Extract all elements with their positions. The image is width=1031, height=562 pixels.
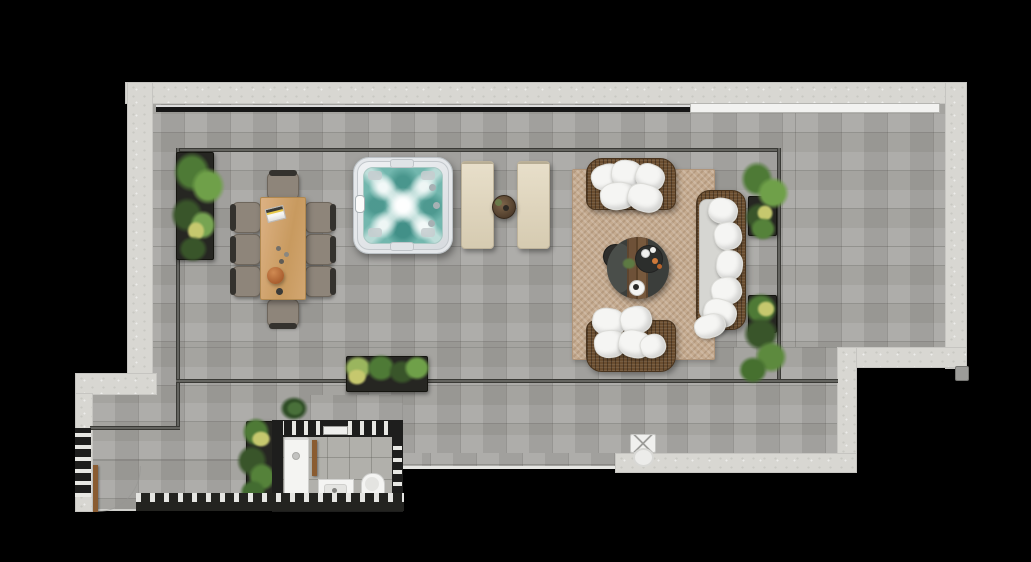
coffee-decor-dish-center [633,284,639,290]
terrace-railing-jog-southwest [90,426,180,430]
sun-lounger [461,161,494,249]
skylight-strip-light [690,103,940,113]
hot-tub-jet [433,202,440,209]
hot-tub-headrest [390,242,414,251]
dining-chair [267,299,299,327]
hot-tub-seat-pad [368,228,382,237]
bathroom-wall-top-hatch [280,421,322,435]
sun-lounger [517,161,550,249]
table-cup [276,288,283,295]
hot-tub-seat-pad [368,171,382,180]
outer-wall-top [125,82,967,104]
dining-chair [305,266,334,297]
side-table-cup [503,205,509,211]
foliage-blob [734,352,772,388]
fruit-bowl [267,267,284,284]
hot-tub-jet [428,220,435,227]
dining-chair [232,234,261,265]
hot-tub-headrest [390,159,414,168]
bathroom-door [312,440,317,476]
wall-spout-knob [955,366,969,381]
outer-wall-right [945,82,967,369]
foliage-blob [746,214,780,244]
floor-drain-circle [633,448,654,467]
bathroom-wall-right-hatch [393,440,402,498]
hot-tub-control-panel [355,195,365,213]
floor-plan [0,0,1031,562]
agave-plant-center [284,399,306,418]
dining-chair [232,202,261,233]
coffee-decor-orange [657,264,662,269]
coffee-decor-orange [652,258,658,264]
slat-screen-band [136,493,404,511]
outer-wall-left-upper [127,82,153,377]
dining-chair [267,172,299,200]
bathroom-window-sill [323,426,348,435]
hot-tub-jet [429,184,436,191]
table-decor-dots [276,246,281,251]
outer-wall-jog-west [75,373,157,395]
coffee-decor-plant-sprig [620,256,638,271]
dining-chair [305,202,334,233]
foliage-blob [174,232,212,266]
side-table-plant [495,199,502,206]
hot-tub-seat-pad [421,228,435,237]
dining-chair [305,234,334,265]
toilet-bowl [365,477,379,491]
floor-edge-line-south [400,466,615,469]
skylight-strip-dark [156,105,690,112]
terrace-railing-north [176,148,780,152]
coffee-decor-cup [650,247,656,253]
hot-tub-seat-pad [421,171,435,180]
shower-drain [292,452,300,460]
hatch-wall-west [75,428,91,497]
coffee-decor-cup [641,249,650,258]
foliage-blob [400,352,434,384]
dining-chair [232,266,261,297]
